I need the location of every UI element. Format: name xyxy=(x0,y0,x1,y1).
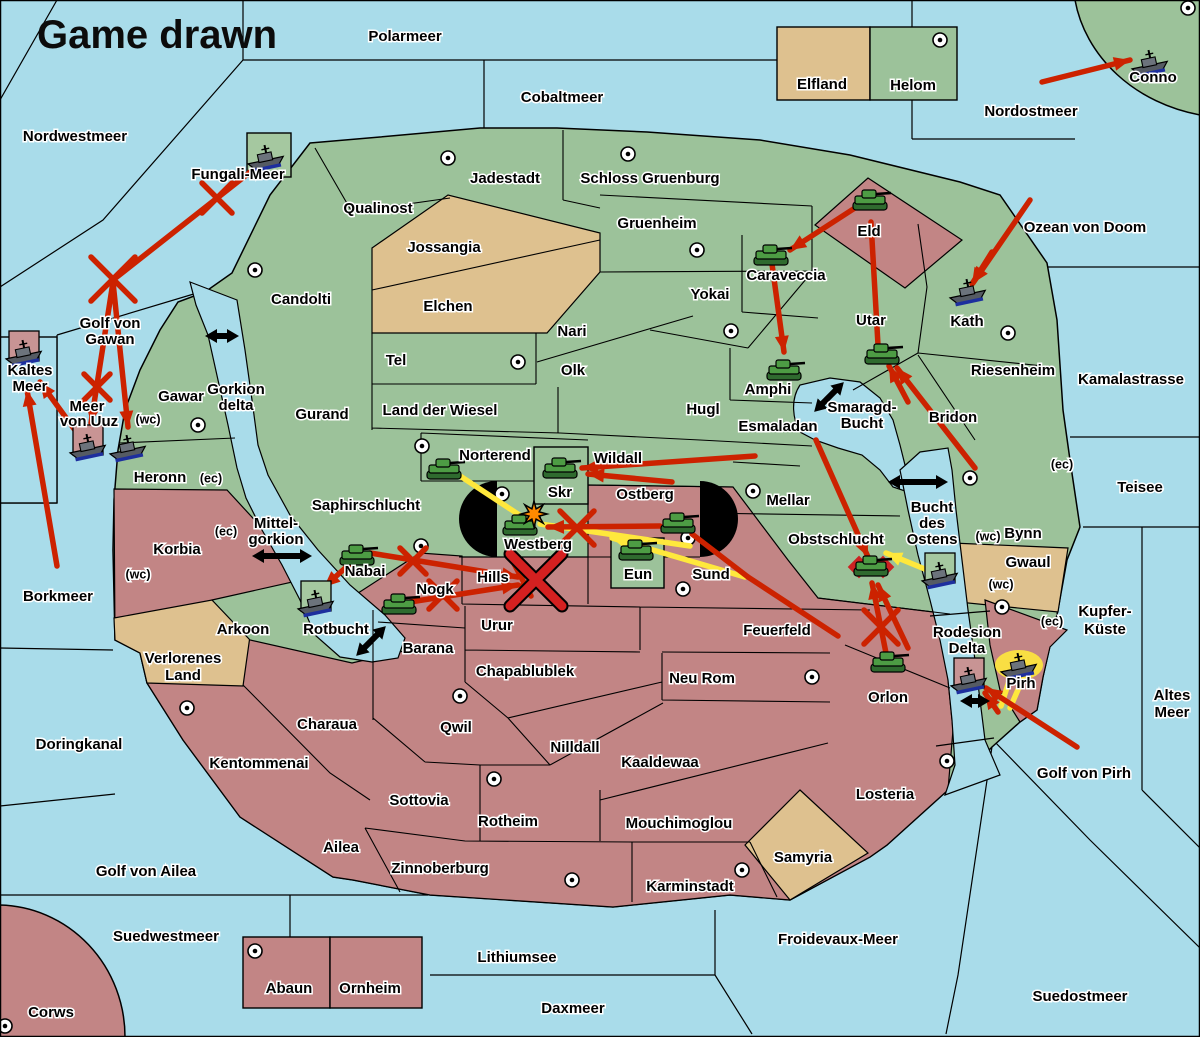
region-label: Nabai xyxy=(345,563,386,580)
region-box xyxy=(330,937,422,1008)
region-label: (wc) xyxy=(976,529,1001,543)
region-label: Küste xyxy=(1084,621,1126,638)
region-label: Land der Wiesel xyxy=(383,402,498,419)
region-label: Gurand xyxy=(295,406,348,423)
region-label: Cobaltmeer xyxy=(521,89,604,106)
region-label: (wc) xyxy=(989,577,1014,591)
map-title: Game drawn xyxy=(37,13,277,57)
supply-center xyxy=(487,772,501,786)
region-label: Korbia xyxy=(153,541,201,558)
game-map: PolarmeerNordwestmeerCobaltmeerNordostme… xyxy=(0,0,1200,1037)
region-label: Gawan xyxy=(85,331,134,348)
region-label: Gorkion xyxy=(207,381,265,398)
region-label: Mellar xyxy=(766,492,810,509)
region-label: Ornheim xyxy=(339,980,401,997)
supply-center xyxy=(441,151,455,165)
region-label: Smaragd- xyxy=(827,399,896,416)
region-label: Samyria xyxy=(774,849,833,866)
region-label: Polarmeer xyxy=(368,28,442,45)
region-label: Eun xyxy=(624,566,652,583)
supply-center xyxy=(248,944,262,958)
region-label: Qwil xyxy=(440,719,472,736)
region-label: Karminstadt xyxy=(646,878,734,895)
region-label: Nari xyxy=(557,323,586,340)
supply-center xyxy=(248,263,262,277)
region-label: Obstschlucht xyxy=(788,531,884,548)
supply-center xyxy=(1001,326,1015,340)
region-label: Bynn xyxy=(1004,525,1042,542)
region-label: gorkion xyxy=(249,531,304,548)
region-label: Sottovia xyxy=(389,792,449,809)
region-label: Jadestadt xyxy=(470,170,540,187)
region-label: Feuerfeld xyxy=(743,622,811,639)
region-label: Hugl xyxy=(686,401,719,418)
region-label: Kaltes xyxy=(7,362,52,379)
supply-center xyxy=(933,33,947,47)
supply-center xyxy=(180,701,194,715)
region-label: Pirh xyxy=(1006,675,1035,692)
region-label: Golf von Ailea xyxy=(96,863,197,880)
region-label: Norterend xyxy=(459,447,531,464)
region-label: Kupfer- xyxy=(1078,603,1131,620)
region-label: Bridon xyxy=(929,409,977,426)
region-label: Nilldall xyxy=(550,739,599,756)
region-label: Kentommenai xyxy=(209,755,308,772)
region-label: Heronn xyxy=(134,469,187,486)
region-label: Wildall xyxy=(594,450,642,467)
region-label: Ailea xyxy=(323,839,360,856)
region-label: Losteria xyxy=(856,786,915,803)
region-label: Esmaladan xyxy=(738,418,817,435)
region-label: Rotheim xyxy=(478,813,538,830)
region-label: Mouchimoglou xyxy=(626,815,733,832)
region-label: Westberg xyxy=(504,536,572,553)
region-label: Bucht xyxy=(911,499,954,516)
region-label: Kamalastrasse xyxy=(1078,371,1184,388)
supply-center xyxy=(963,471,977,485)
region-label: von Uuz xyxy=(60,413,118,430)
supply-center xyxy=(453,689,467,703)
region-label: Helom xyxy=(890,77,936,94)
region-label: Ozean von Doom xyxy=(1024,219,1147,236)
region-label: Gwaul xyxy=(1005,554,1050,571)
region-label: Riesenheim xyxy=(971,362,1055,379)
region-label: Hills xyxy=(477,569,509,586)
supply-center xyxy=(746,484,760,498)
supply-center xyxy=(0,1019,12,1033)
region-label: Conno xyxy=(1129,69,1176,86)
region-label: delta xyxy=(218,397,254,414)
supply-center xyxy=(511,355,525,369)
region-label: Kath xyxy=(950,313,983,330)
region-label: (ec) xyxy=(1041,614,1063,628)
region-label: Schloss Gruenburg xyxy=(580,170,719,187)
region-label: Ostens xyxy=(907,531,958,548)
supply-center xyxy=(690,243,704,257)
region-label: Suedostmeer xyxy=(1032,988,1127,1005)
region-label: Lithiumsee xyxy=(477,949,556,966)
supply-center xyxy=(940,754,954,768)
region-label: Nordostmeer xyxy=(984,103,1078,120)
region-label: Sund xyxy=(692,566,730,583)
region-label: Corws xyxy=(28,1004,74,1021)
supply-center xyxy=(415,439,429,453)
region-label: Saphirschlucht xyxy=(312,497,420,514)
region-label: Meer xyxy=(12,378,47,395)
region-label: Barana xyxy=(403,640,455,657)
supply-center xyxy=(621,147,635,161)
region-label: Candolti xyxy=(271,291,331,308)
region-label: Daxmeer xyxy=(541,1000,605,1017)
region-label: Nogk xyxy=(416,581,454,598)
region-label: Rodesion xyxy=(933,624,1001,641)
region-label: Bucht xyxy=(841,415,884,432)
region-label: Verlorenes xyxy=(145,650,222,667)
region-label: (wc) xyxy=(126,567,151,581)
region-label: Eld xyxy=(857,223,880,240)
region-label: Meer xyxy=(1154,704,1189,721)
region-label: (ec) xyxy=(1051,457,1073,471)
region-label: Yokai xyxy=(691,286,730,303)
conflict-layer xyxy=(521,501,547,527)
region-label: Mittel- xyxy=(254,515,298,532)
region-label: Utar xyxy=(856,312,886,329)
region-label: Charaua xyxy=(297,716,358,733)
supply-center xyxy=(995,600,1009,614)
conflict-starburst xyxy=(521,501,547,527)
region-label: Arkoon xyxy=(217,621,270,638)
region-label: Land xyxy=(165,667,201,684)
region-label: (ec) xyxy=(215,524,237,538)
region-label: Gawar xyxy=(158,388,204,405)
region-label: Orlon xyxy=(868,689,908,706)
region-label: Suedwestmeer xyxy=(113,928,219,945)
region-label: Rotbucht xyxy=(303,621,369,638)
supply-center xyxy=(191,418,205,432)
region-label: Chapablublek xyxy=(476,663,575,680)
region-label: Jossangia xyxy=(407,239,481,256)
region-label: Delta xyxy=(949,640,986,657)
region-label: Amphi xyxy=(745,381,792,398)
supply-center xyxy=(724,324,738,338)
region-label: Elfland xyxy=(797,76,847,93)
supply-center xyxy=(676,582,690,596)
region-label: Teisee xyxy=(1117,479,1163,496)
region-label: (wc) xyxy=(136,412,161,426)
region-label: Golf von Pirh xyxy=(1037,765,1131,782)
region-label: Borkmeer xyxy=(23,588,93,605)
region-label: Qualinost xyxy=(343,200,412,217)
region-label: Skr xyxy=(548,484,572,501)
region-label: Doringkanal xyxy=(36,736,123,753)
region-label: Elchen xyxy=(423,298,472,315)
region-label: Urur xyxy=(481,617,513,634)
region-label: Golf von xyxy=(80,315,141,332)
supply-center xyxy=(805,670,819,684)
region-label: Fungali-Meer xyxy=(191,166,285,183)
region-label: Ostberg xyxy=(616,486,674,503)
region-label: Kaaldewaa xyxy=(621,754,699,771)
region-label: Nordwestmeer xyxy=(23,128,127,145)
region-label: Caraveccia xyxy=(746,267,826,284)
region-label: Tel xyxy=(386,352,407,369)
region-label: Froidevaux-Meer xyxy=(778,931,898,948)
region-label: (ec) xyxy=(200,471,222,485)
map-svg: PolarmeerNordwestmeerCobaltmeerNordostme… xyxy=(0,0,1200,1037)
region-label: des xyxy=(919,515,945,532)
region-label: Altes xyxy=(1154,687,1191,704)
supply-center xyxy=(565,873,579,887)
region-label: Gruenheim xyxy=(617,215,696,232)
region-label: Neu Rom xyxy=(669,670,735,687)
region-label: Olk xyxy=(561,362,586,379)
region-label: Zinnoberburg xyxy=(391,860,489,877)
supply-center xyxy=(1181,1,1195,15)
supply-center xyxy=(735,863,749,877)
region-label: Abaun xyxy=(266,980,313,997)
